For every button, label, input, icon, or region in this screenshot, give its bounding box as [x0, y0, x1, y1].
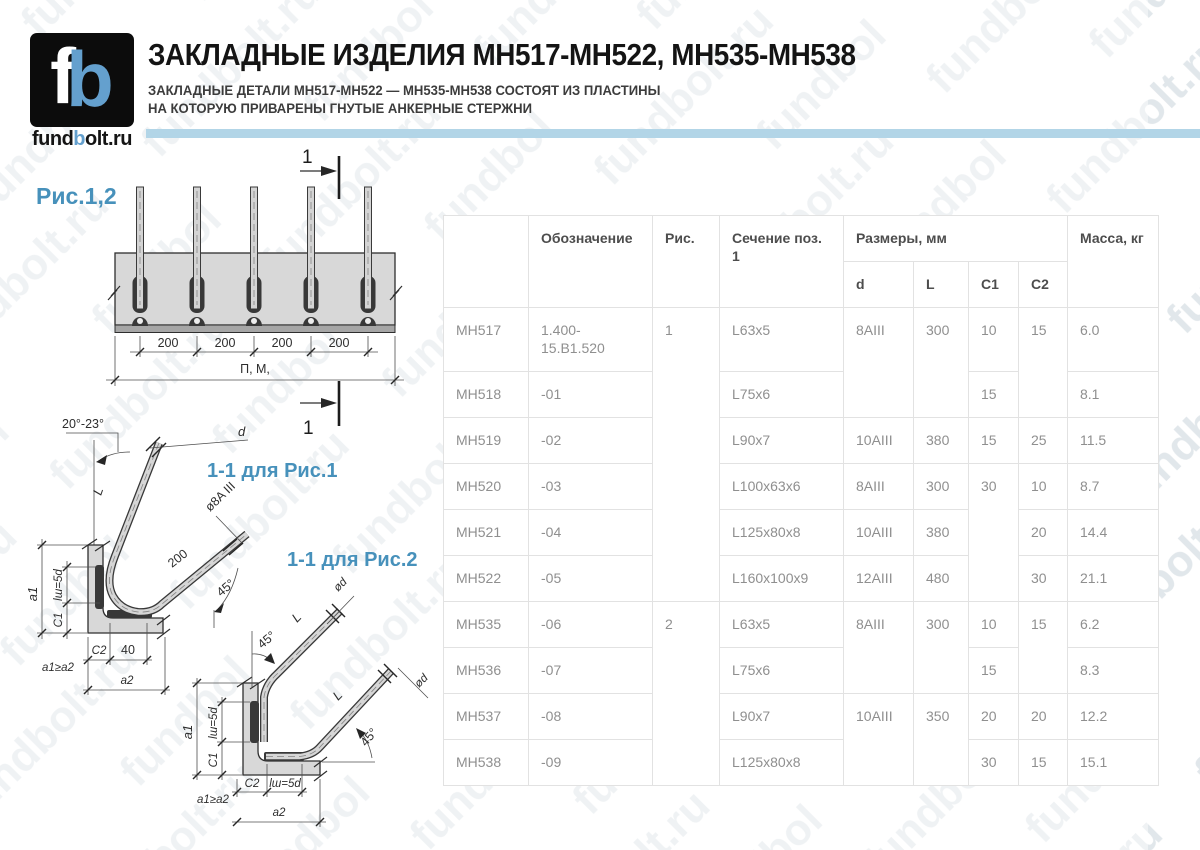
- logo-letter-b: b: [66, 40, 114, 118]
- spec-table-cell: L75x6: [720, 648, 844, 694]
- spec-table-cell: МН538: [444, 740, 529, 786]
- spec-table-cell: 300: [914, 464, 969, 510]
- spec-table-cell: L125x80x8: [720, 740, 844, 786]
- spec-table-row: МН522-05L160x100x912AIII4803021.1: [444, 556, 1159, 602]
- spec-table-header-cell: Обозначение: [529, 216, 653, 308]
- spec-table-row: МН538-09L125x80x8301515.1: [444, 740, 1159, 786]
- spacing-dim: 200: [215, 336, 236, 350]
- spec-table-row: МН521-04L125x80x810AIII3802014.4: [444, 510, 1159, 556]
- section-marker-bottom: 1: [300, 381, 339, 439]
- spec-table-cell: МН518: [444, 372, 529, 418]
- section-marker-top: 1: [300, 147, 339, 199]
- spec-table-header-cell: [444, 216, 529, 308]
- page-subtitle: ЗАКЛАДНЫЕ ДЕТАЛИ МН517-МН522 — МН535-МН5…: [148, 82, 660, 118]
- rod-spec-label: ø8A III: [202, 479, 238, 514]
- spec-table-cell: 10: [1019, 464, 1068, 510]
- spec-table-cell: 2: [653, 602, 720, 786]
- spec-table-cell: -09: [529, 740, 653, 786]
- dim-note: a1≥a2: [42, 662, 74, 674]
- rod-length-label: L: [90, 485, 107, 497]
- spec-table-cell: 15: [969, 418, 1019, 464]
- spec-table-cell: МН520: [444, 464, 529, 510]
- spec-table-cell: -01: [529, 372, 653, 418]
- spec-table-row: МН519-02L90x710AIII380152511.5: [444, 418, 1159, 464]
- spec-table-cell: 8AIII: [844, 464, 914, 510]
- spec-table-cell: 380: [914, 510, 969, 556]
- dim-c2-label: C2: [92, 645, 107, 657]
- spec-table-cell: -05: [529, 556, 653, 602]
- plan-spacing-dimensions: 200 200 200 200: [130, 336, 378, 357]
- spec-table-cell: -08: [529, 694, 653, 740]
- spec-table-cell: МН522: [444, 556, 529, 602]
- tail-angle-label: 45°: [214, 576, 237, 599]
- spec-table-cell: 380: [914, 418, 969, 464]
- spec-table-cell: L125x80x8: [720, 510, 844, 556]
- spacing-dim: 200: [329, 336, 350, 350]
- weld-vertical: [250, 701, 259, 743]
- spec-table-cell: 20: [969, 694, 1019, 740]
- spec-table-cell: 15.1: [1068, 740, 1159, 786]
- spec-table-cell: -06: [529, 602, 653, 648]
- spec-table-cell: 30: [969, 464, 1019, 602]
- spec-table-cell: 350: [914, 694, 969, 786]
- angle-label: 45°: [255, 628, 278, 651]
- spec-table-cell: 21.1: [1068, 556, 1159, 602]
- spec-table-cell: МН521: [444, 510, 529, 556]
- spec-table-cell: 300: [914, 602, 969, 694]
- rod-diameter-label: ød: [413, 672, 431, 690]
- dim-40-label: 40: [121, 643, 135, 657]
- spec-table-cell: 10: [969, 602, 1019, 648]
- spec-table-cell: L100x63x6: [720, 464, 844, 510]
- spec-table-cell: L75x6: [720, 372, 844, 418]
- spec-table-header-cell: C1: [969, 262, 1019, 308]
- fundbolt-logo: fb: [30, 33, 134, 127]
- spec-table-cell: 30: [1019, 556, 1068, 602]
- spec-table-cell: 15: [1019, 308, 1068, 418]
- rod-length-label: L: [289, 609, 305, 625]
- spacing-dim: 200: [272, 336, 293, 350]
- spec-table-cell: 12.2: [1068, 694, 1159, 740]
- spec-table-cell: 11.5: [1068, 418, 1159, 464]
- spec-table-header-cell: Сечение поз. 1: [720, 216, 844, 308]
- angle-label: 45°: [358, 725, 381, 748]
- spec-table-cell: 30: [969, 740, 1019, 786]
- dim-a2-label: a2: [273, 807, 286, 819]
- spec-table-cell: 8.7: [1068, 464, 1159, 510]
- rod-length-label: L: [330, 687, 346, 703]
- spec-table-cell: 10AIII: [844, 418, 914, 464]
- section-marker-number: 1: [303, 418, 314, 439]
- spec-table-header-cell: d: [844, 262, 914, 308]
- section2-title: 1-1 для Рис.2: [287, 549, 418, 571]
- spec-table-cell: L63x5: [720, 602, 844, 648]
- anchor-rod-vertical-leg: [264, 611, 340, 742]
- dim-a1-label: a1: [25, 587, 40, 601]
- bend-angle-label: 20°-23°: [62, 417, 104, 431]
- plan-view-drawing: Рис.1,2 1: [36, 147, 404, 439]
- spec-table-cell: L63x5: [720, 308, 844, 372]
- spec-table-cell: 15: [969, 372, 1019, 418]
- spec-table-header-cell: L: [914, 262, 969, 308]
- spec-table-cell: -02: [529, 418, 653, 464]
- spec-table-cell: 10AIII: [844, 510, 914, 556]
- spec-table-row: МН537-08L90x710AIII350202012.2: [444, 694, 1159, 740]
- spec-table-cell: МН517: [444, 308, 529, 372]
- dim-c2-label: C2: [245, 778, 260, 790]
- logo-letter-f: f: [50, 37, 66, 115]
- spec-table-header-cell: C2: [1019, 262, 1068, 308]
- spec-table-cell: 1.400-15.В1.520: [529, 308, 653, 372]
- spec-table-header-cell: Масса, кг: [1068, 216, 1159, 308]
- base-plate-edge: [115, 325, 395, 333]
- spec-table-cell: -03: [529, 464, 653, 510]
- spec-table-cell: 8AIII: [844, 602, 914, 694]
- spec-table: ОбозначениеРис.Сечение поз. 1Размеры, мм…: [443, 215, 1159, 786]
- dim-c1-label: C1: [53, 613, 65, 628]
- dim-lw-label: lш=5d: [269, 778, 301, 790]
- spec-table-cell: 6.0: [1068, 308, 1159, 372]
- spec-table-header-cell: Размеры, мм: [844, 216, 1068, 262]
- spec-table-cell: 1: [653, 308, 720, 602]
- section-marker-number: 1: [302, 147, 313, 168]
- section2-left-dimensions: a1 lш=5d C1: [180, 678, 250, 780]
- dim-lw-label: lш=5d: [53, 569, 65, 601]
- spec-table-cell: 15: [969, 648, 1019, 694]
- spec-table-cell: L90x7: [720, 694, 844, 740]
- figure-label: Рис.1,2: [36, 183, 117, 209]
- spec-table-cell: МН536: [444, 648, 529, 694]
- page-subtitle-line1: ЗАКЛАДНЫЕ ДЕТАЛИ МН517-МН522 — МН535-МН5…: [148, 82, 660, 100]
- dim-c1-label: C1: [208, 753, 220, 768]
- spec-table-cell: 300: [914, 308, 969, 418]
- page-subtitle-line2: НА КОТОРУЮ ПРИВАРЕНЫ ГНУТЫЕ АНКЕРНЫЕ СТЕ…: [148, 100, 660, 118]
- spec-table-row: МН520-03L100x63x68AIII30030108.7: [444, 464, 1159, 510]
- spec-table-cell: 15: [1019, 740, 1068, 786]
- tail-length-label: 200: [165, 546, 190, 570]
- section1-bottom-dimensions: C2 40 a2 a1≥a2: [42, 623, 170, 695]
- spec-table-cell: 14.4: [1068, 510, 1159, 556]
- spec-table-row: МН5171.400-15.В1.5201L63x58AIII30010156.…: [444, 308, 1159, 372]
- rod-diameter-label: ød: [332, 576, 350, 594]
- header-divider-bar: [146, 129, 1200, 138]
- plan-total-label: П, М,: [240, 362, 270, 376]
- rod-diameter-label: d: [238, 424, 246, 439]
- spec-table-cell: 480: [914, 556, 969, 602]
- spec-table-cell: -04: [529, 510, 653, 556]
- spec-table-cell: 15: [1019, 602, 1068, 694]
- spec-table-row: МН535-062L63x58AIII30010156.2: [444, 602, 1159, 648]
- spec-table-cell: 12AIII: [844, 556, 914, 602]
- spec-table-cell: -07: [529, 648, 653, 694]
- spec-table-cell: 10AIII: [844, 694, 914, 786]
- dim-a2-label: a2: [121, 675, 134, 687]
- section1-title: 1-1 для Рис.1: [207, 460, 338, 482]
- weld-vertical: [95, 565, 104, 609]
- spec-table-header-row: ОбозначениеРис.Сечение поз. 1Размеры, мм…: [444, 216, 1159, 262]
- technical-drawing: Рис.1,2 1: [0, 140, 446, 850]
- dim-lw-label: lш=5d: [208, 707, 220, 739]
- plan-overall-dimension: П, М,: [106, 336, 404, 386]
- dim-note: a1≥a2: [197, 794, 229, 806]
- spec-table-cell: 20: [1019, 510, 1068, 556]
- spec-table-cell: 20: [1019, 694, 1068, 740]
- spec-table-cell: МН535: [444, 602, 529, 648]
- spec-table-cell: МН519: [444, 418, 529, 464]
- spec-table-cell: L90x7: [720, 418, 844, 464]
- spec-table-cell: 8.3: [1068, 648, 1159, 694]
- spec-table-cell: 6.2: [1068, 602, 1159, 648]
- dim-a1-label: a1: [180, 725, 195, 739]
- spacing-dim: 200: [158, 336, 179, 350]
- spec-table-cell: 8.1: [1068, 372, 1159, 418]
- spec-table-cell: МН537: [444, 694, 529, 740]
- spec-table-cell: 25: [1019, 418, 1068, 464]
- page-title: ЗАКЛАДНЫЕ ИЗДЕЛИЯ МН517-МН522, МН535-МН5…: [148, 37, 856, 73]
- spec-table-cell: L160x100x9: [720, 556, 844, 602]
- spec-table-header-cell: Рис.: [653, 216, 720, 308]
- spec-table-cell: 10: [969, 308, 1019, 372]
- spec-table-cell: 8AIII: [844, 308, 914, 418]
